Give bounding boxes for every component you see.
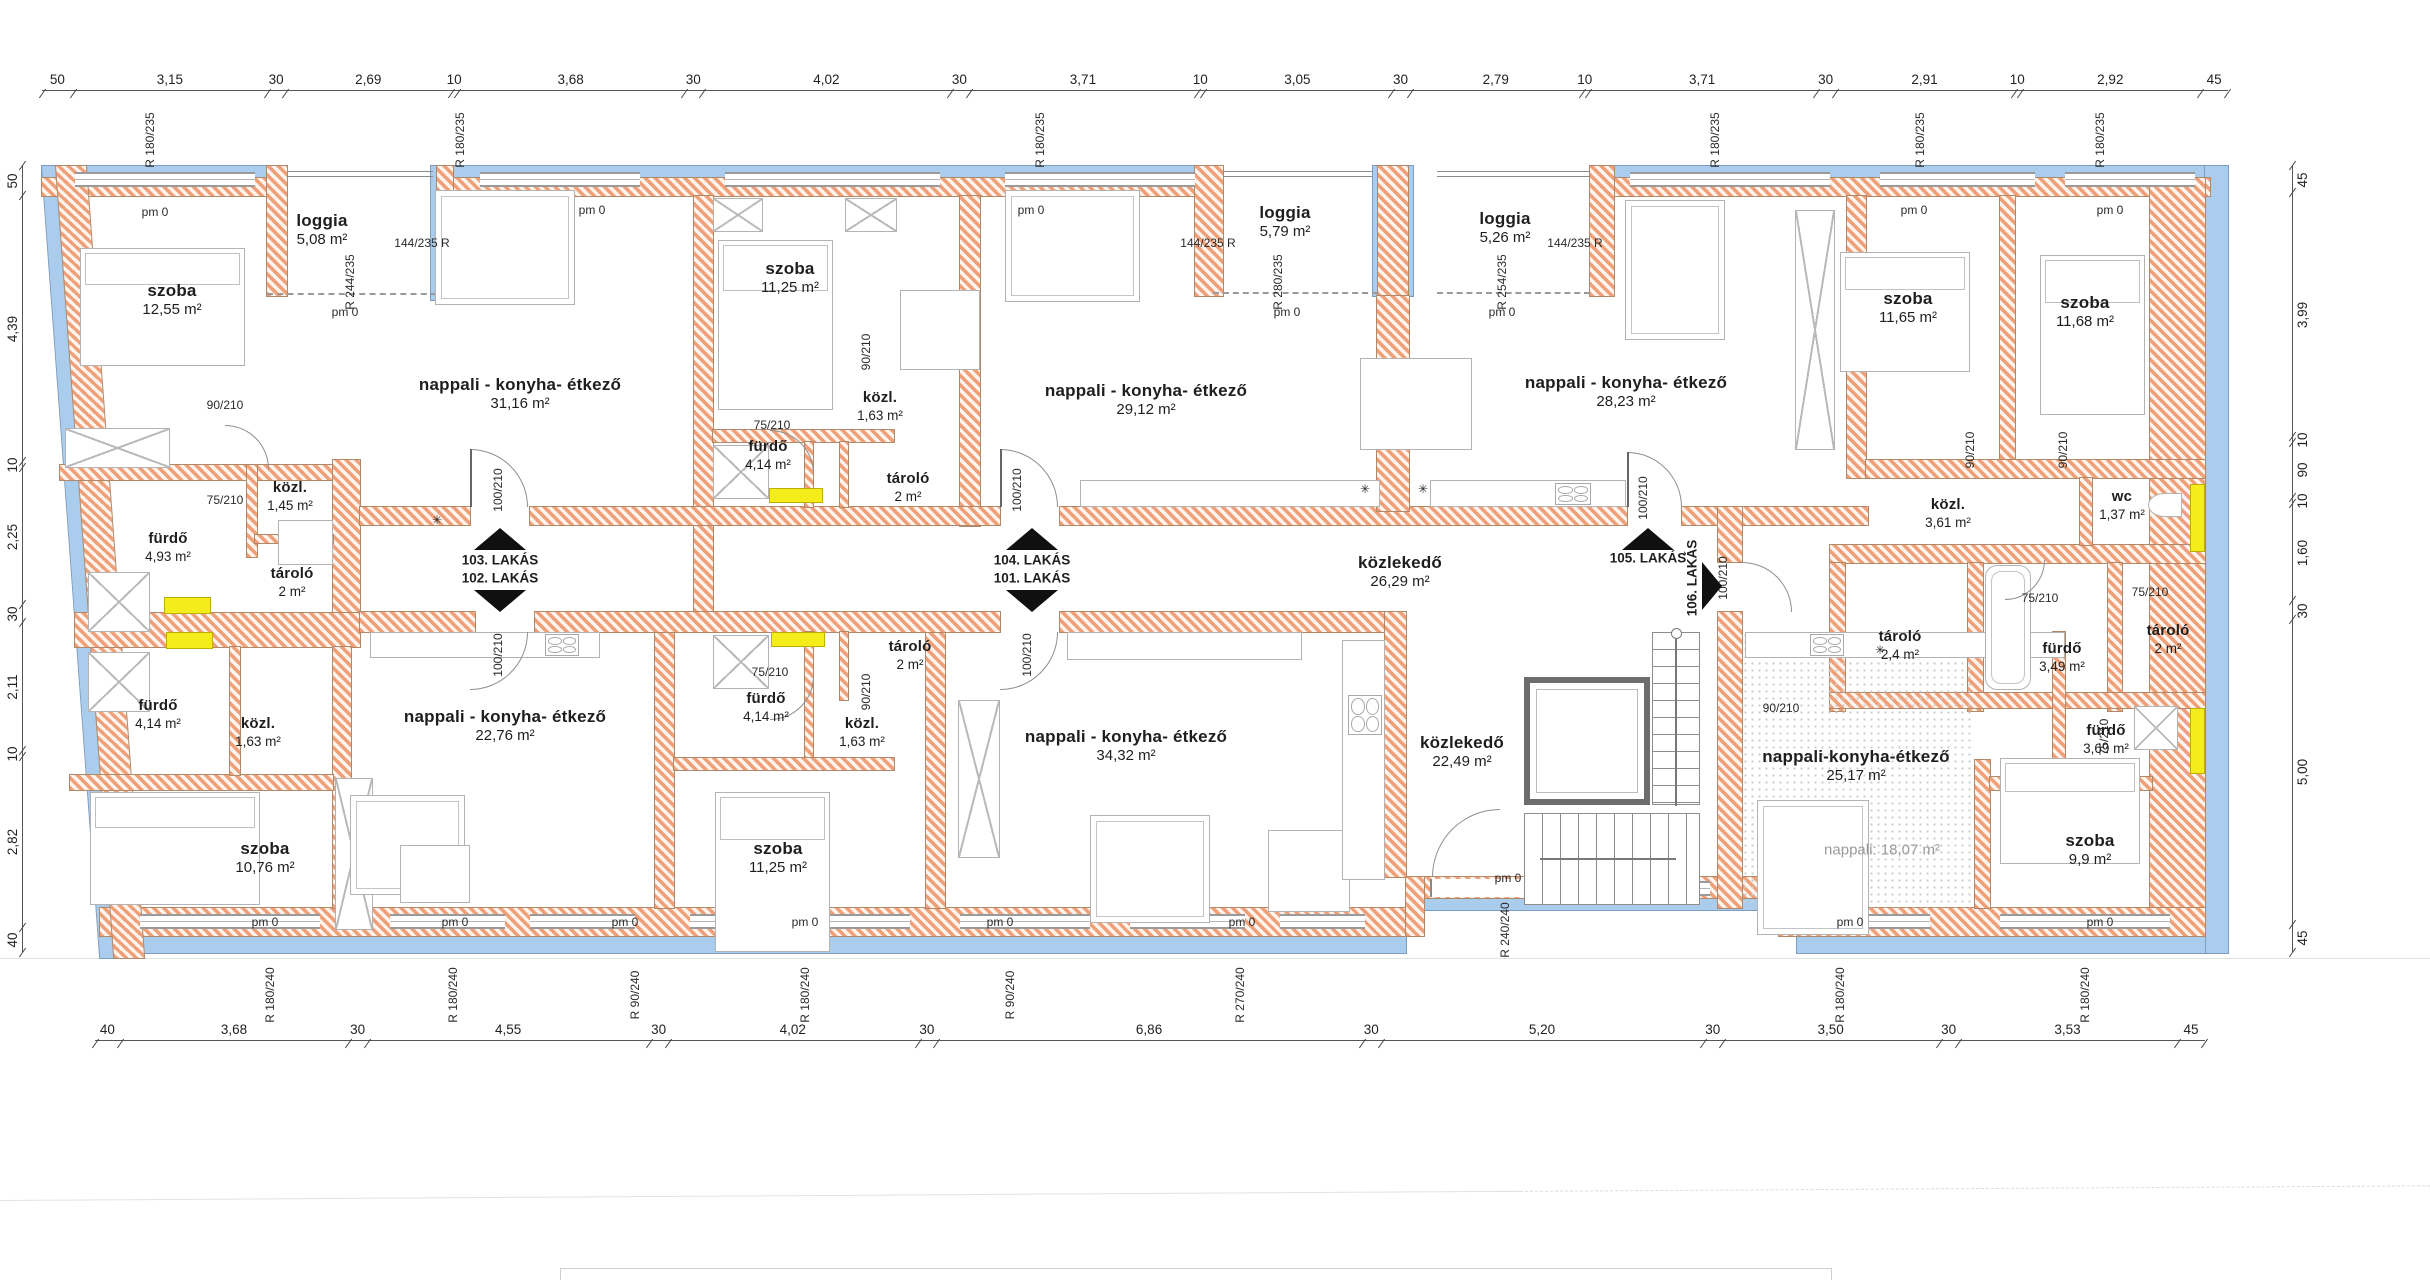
- room-area: 22,76 m²: [404, 727, 606, 746]
- wall-interior: [2080, 478, 2092, 545]
- wall-interior: [713, 430, 894, 442]
- annotation: R 180/235: [1913, 112, 1927, 167]
- annotation: pm 0: [579, 203, 606, 217]
- annotation: R 270/240: [1233, 967, 1247, 1022]
- room-area: 1,63 m²: [857, 408, 903, 425]
- wall-loggia-pier: [1590, 166, 1614, 296]
- wall-loggia-pier: [1195, 166, 1223, 296]
- room-label: fürdő 4,93 m²: [145, 530, 191, 566]
- dimension-segment: 30: [1703, 1030, 1722, 1041]
- dimension-segment: 45: [2200, 80, 2228, 91]
- dimension-segment: 3,15: [73, 80, 267, 91]
- shower: [2134, 706, 2178, 750]
- dimension-segment: 90: [2292, 443, 2303, 498]
- dimension-segment: 30: [684, 80, 702, 91]
- room-label: közl. 3,61 m²: [1925, 496, 1971, 532]
- annotation: 75/210: [2022, 591, 2059, 605]
- room-label: fürdő 4,14 m²: [135, 697, 181, 733]
- entry-arrow-right-icon: [1702, 562, 1722, 610]
- room-area: 26,29 m²: [1358, 573, 1442, 592]
- loggia-edge-dashed: [1213, 292, 1378, 294]
- room-name: fürdő: [135, 697, 181, 716]
- elevator-shaft: [1524, 677, 1650, 805]
- room-label: nappali-konyha-étkező 25,17 m²: [1762, 746, 1949, 786]
- wall-interior: [1975, 760, 1990, 908]
- room-area: 28,23 m²: [1525, 393, 1727, 412]
- insulation-strip: [1797, 936, 2205, 953]
- floor-plan-canvas: szoba 12,55 m² loggia 5,08 m² nappali - …: [0, 0, 2430, 1280]
- highlight-mark: [2191, 485, 2204, 551]
- annotation: R 280/235: [1271, 254, 1285, 309]
- annotation: pm 0: [332, 305, 359, 319]
- door-swing: [1000, 449, 1058, 507]
- dimension-row-top: 503,15302,69103,68304,02303,71103,05302,…: [42, 80, 2228, 91]
- room-area: 4,93 m²: [145, 549, 191, 566]
- annotation: 90/210: [2056, 432, 2070, 469]
- dimension-column-left: 504,39102,25302,11102,8240: [12, 166, 23, 952]
- annotation: 75/210: [207, 493, 244, 507]
- annotation: R 254/235: [1495, 254, 1509, 309]
- room-area: 2 m²: [271, 584, 314, 601]
- dimension-segment: 4,02: [668, 1030, 918, 1041]
- room-name: közl.: [235, 715, 281, 734]
- dimension-segment: 1,60: [2292, 504, 2303, 602]
- annotation: R 180/235: [143, 112, 157, 167]
- wall-notch-side: [1406, 877, 1424, 936]
- entry-label-105: 105. LAKÁS: [1610, 551, 1687, 566]
- loggia-railing: [1437, 171, 1590, 177]
- dimension-segment: 3,50: [1722, 1030, 1939, 1041]
- annotation: pm 0: [1229, 915, 1256, 929]
- room-area: 5,79 m²: [1259, 223, 1310, 242]
- room-label: fürdő 4,14 m²: [745, 438, 791, 474]
- dining-table: [1268, 830, 1350, 912]
- dimension-segment: 4,39: [12, 196, 23, 462]
- kitchen-counter: [1080, 480, 1380, 507]
- dining-table: [900, 290, 980, 370]
- annotation: 75/210: [754, 418, 791, 432]
- room-label: nappali - konyha- étkező 28,23 m²: [1525, 372, 1727, 412]
- annotation: pm 0: [1274, 305, 1301, 319]
- room-area: 29,12 m²: [1045, 401, 1247, 420]
- wall-interior: [1385, 612, 1406, 877]
- annotation: ✳: [432, 513, 442, 527]
- annotation: pm 0: [142, 205, 169, 219]
- wall-partition: [840, 632, 848, 700]
- cooktop: [545, 634, 579, 656]
- room-area: 5,26 m²: [1479, 229, 1530, 248]
- room-name: loggia: [296, 210, 347, 231]
- table: [400, 845, 470, 903]
- annotation: 75/210: [2097, 719, 2111, 756]
- dimension-segment: 30: [1939, 1030, 1958, 1041]
- annotation: 100/210: [491, 633, 505, 676]
- wall-corridor-bottom: [535, 612, 1000, 632]
- wardrobe: [65, 428, 170, 468]
- cooktop: [1555, 483, 1591, 505]
- annotation: 144/235 R: [1547, 236, 1602, 250]
- wall-corridor-bottom: [360, 612, 475, 632]
- dimension-segment: 30: [1362, 1030, 1381, 1041]
- annotation: pm 0: [792, 915, 819, 929]
- room-area: 31,16 m²: [419, 395, 621, 414]
- shower: [713, 635, 769, 689]
- dimension-segment: 30: [348, 1030, 367, 1041]
- room-name: közl.: [1925, 496, 1971, 515]
- room-name: szoba: [142, 280, 201, 301]
- annotation: pm 0: [1901, 203, 1928, 217]
- room-area: 12,55 m²: [142, 301, 201, 320]
- window: [960, 914, 1090, 929]
- annotation: R 180/235: [453, 112, 467, 167]
- wall-interior: [1866, 460, 2205, 478]
- window: [725, 172, 940, 187]
- room-label: nappali - konyha- étkező 31,16 m²: [419, 374, 621, 414]
- room-label: közl. 1,63 m²: [839, 715, 885, 751]
- insulation-strip: [1408, 166, 1413, 296]
- room-name: közlekedő: [1358, 552, 1442, 573]
- wall-corridor-top: [360, 507, 470, 525]
- annotation: R 180/240: [263, 967, 277, 1022]
- annotation: pm 0: [2097, 203, 2124, 217]
- wall-partition: [840, 442, 848, 507]
- insulation-strip: [2205, 166, 2228, 953]
- dimension-segment: 45: [2177, 1030, 2205, 1041]
- door-swing: [225, 425, 269, 469]
- dimension-segment: 3,68: [120, 1030, 348, 1041]
- room-area: 25,17 m²: [1762, 767, 1949, 786]
- room-area: 34,32 m²: [1025, 747, 1227, 766]
- room-area: 1,63 m²: [235, 734, 281, 751]
- cooktop: [1348, 695, 1382, 735]
- room-label: közlekedő 22,49 m²: [1420, 732, 1504, 772]
- door-leaf: [1000, 449, 1002, 507]
- wardrobe: [713, 198, 763, 232]
- wall-interior: [655, 632, 674, 908]
- room-label: fürdő 3,49 m²: [2039, 640, 2085, 676]
- kitchen-counter: [1067, 632, 1302, 660]
- room-label: fürdő 4,14 m²: [743, 690, 789, 726]
- room-name: wc: [2099, 488, 2145, 507]
- room-name: közl.: [857, 389, 903, 408]
- room-name: tároló: [889, 638, 932, 657]
- annotation: pm 0: [252, 915, 279, 929]
- annotation: R 180/240: [1833, 967, 1847, 1022]
- room-name: fürdő: [745, 438, 791, 457]
- room-name: szoba: [749, 838, 807, 859]
- entry-label-101: 101. LAKÁS: [994, 571, 1071, 586]
- toilet: [2148, 493, 2182, 517]
- wall-interior: [694, 196, 713, 612]
- shower: [88, 572, 150, 632]
- room-area: 1,45 m²: [267, 498, 313, 515]
- entry-arrow-up-icon: [1622, 528, 1674, 550]
- wall-loggia-pier: [267, 166, 287, 296]
- annotation: 90/210: [207, 398, 244, 412]
- wall-interior: [1718, 507, 1742, 562]
- entry-arrow-up-icon: [474, 528, 526, 550]
- room-label: nappali - konyha- étkező 34,32 m²: [1025, 726, 1227, 766]
- dimension-segment: 30: [12, 605, 23, 623]
- room-label: wc 1,37 m²: [2099, 488, 2145, 524]
- sofa: [1625, 200, 1725, 340]
- window: [2065, 172, 2195, 187]
- room-area: 22,49 m²: [1420, 753, 1504, 772]
- entry-label-103: 103. LAKÁS: [462, 553, 539, 568]
- loggia-railing: [1223, 171, 1373, 177]
- highlight-mark: [772, 633, 824, 646]
- room-area: 9,9 m²: [2065, 851, 2114, 870]
- annotation: R 180/235: [1708, 112, 1722, 167]
- annotation: 144/235 R: [1180, 236, 1235, 250]
- dimension-segment: 3,05: [1203, 80, 1391, 91]
- window: [75, 172, 255, 187]
- wall-corridor-top: [1060, 507, 1627, 525]
- room-label: közl. 1,63 m²: [235, 715, 281, 751]
- annotation: pm 0: [612, 915, 639, 929]
- window: [830, 914, 910, 929]
- annotation: 90/210: [1963, 432, 1977, 469]
- dimension-segment: 30: [267, 80, 285, 91]
- room-label: szoba 10,76 m²: [235, 838, 294, 878]
- room-area: 1,37 m²: [2099, 507, 2145, 524]
- cooktop: [1810, 634, 1844, 656]
- room-area: 2 m²: [2147, 641, 2190, 658]
- window: [1880, 172, 2035, 187]
- dimension-segment: 2,69: [285, 80, 451, 91]
- room-label: szoba 9,9 m²: [2065, 830, 2114, 870]
- dimension-segment: 4,02: [702, 80, 950, 91]
- room-label: közlekedő 26,29 m²: [1358, 552, 1442, 592]
- dining-table: [1360, 358, 1472, 450]
- room-name: nappali - konyha- étkező: [419, 374, 621, 395]
- room-area: 4,14 m²: [743, 709, 789, 726]
- site-line-dashed: [1500, 1185, 2430, 1192]
- window: [140, 914, 320, 929]
- dimension-segment: 3,68: [457, 80, 684, 91]
- room-name: közl.: [839, 715, 885, 734]
- annotation: R 180/240: [446, 967, 460, 1022]
- annotation: pm 0: [1018, 203, 1045, 217]
- room-name: nappali - konyha- étkező: [1025, 726, 1227, 747]
- wardrobe: [845, 198, 897, 232]
- room-area: 3,49 m²: [2039, 659, 2085, 676]
- dimension-column-right: 453,991090101,60305,0045: [2292, 166, 2303, 952]
- wall-interior: [1718, 612, 1742, 908]
- annotation: R 180/240: [798, 967, 812, 1022]
- dimension-segment: 2,82: [12, 757, 23, 928]
- annotation: R 90/240: [1003, 971, 1017, 1020]
- room-label: loggia 5,08 m²: [296, 210, 347, 250]
- entry-arrow-down-icon: [1006, 590, 1058, 612]
- room-name: nappali - konyha- étkező: [1045, 380, 1247, 401]
- wall-partition: [230, 647, 240, 775]
- room-name: szoba: [2056, 292, 2114, 313]
- wall-interior: [674, 758, 894, 770]
- door-swing: [1432, 809, 1500, 877]
- wall-partition: [247, 465, 257, 557]
- room-label: loggia 5,26 m²: [1479, 208, 1530, 248]
- room-name: közlekedő: [1420, 732, 1504, 753]
- door-leaf: [1627, 452, 1629, 507]
- room-name: nappali-konyha-étkező: [1762, 746, 1949, 767]
- room-name: nappali - konyha- étkező: [404, 706, 606, 727]
- entry-label-104: 104. LAKÁS: [994, 553, 1071, 568]
- annotation: 75/210: [752, 665, 789, 679]
- room-label: szoba 11,68 m²: [2056, 292, 2114, 332]
- annotation: R 90/240: [628, 971, 642, 1020]
- dimension-segment: 30: [950, 80, 968, 91]
- room-label: szoba 11,65 m²: [1879, 288, 1937, 328]
- room-label: szoba 11,25 m²: [749, 838, 807, 878]
- dimension-segment: 2,92: [2020, 80, 2200, 91]
- stair-walkline: [1540, 858, 1676, 860]
- wall-loggia-divider: [1378, 166, 1408, 296]
- site-line: [0, 1191, 1520, 1201]
- room-label: nappali: 18,07 m²: [1824, 842, 1940, 861]
- highlight-mark: [2191, 709, 2204, 773]
- dimension-segment: 30: [1816, 80, 1834, 91]
- dimension-segment: 45: [2292, 925, 2303, 952]
- annotation: 100/210: [1010, 468, 1024, 511]
- annotation: 100/210: [491, 468, 505, 511]
- annotation: pm 0: [442, 915, 469, 929]
- room-name: tároló: [2147, 622, 2190, 641]
- wardrobe: [958, 700, 1000, 858]
- annotation: pm 0: [1489, 305, 1516, 319]
- annotation: 100/210: [1636, 476, 1650, 519]
- room-area: 5,08 m²: [296, 231, 347, 250]
- room-area: nappali: 18,07 m²: [1824, 842, 1940, 861]
- highlight-mark: [165, 598, 210, 613]
- stair-walkline-start: [1671, 628, 1682, 639]
- dimension-segment: 5,20: [1381, 1030, 1704, 1041]
- wall-corridor-top: [530, 507, 1000, 525]
- room-area: 3,61 m²: [1925, 515, 1971, 532]
- bed: [2040, 255, 2145, 415]
- dimension-row-bottom: 403,68304,55304,02306,86305,20303,50303,…: [95, 1030, 2205, 1041]
- dimension-segment: 6,86: [936, 1030, 1362, 1041]
- dimension-segment: 3,99: [2292, 193, 2303, 436]
- dimension-segment: 30: [649, 1030, 668, 1041]
- wall-corridor-bottom: [1060, 612, 1406, 632]
- wardrobe: [1795, 210, 1835, 450]
- room-name: szoba: [1879, 288, 1937, 309]
- dimension-segment: 50: [42, 80, 73, 91]
- dimension-segment: 40: [12, 928, 23, 952]
- room-name: nappali - konyha- étkező: [1525, 372, 1727, 393]
- kitchen-counter: [1430, 480, 1626, 507]
- annotation: 75/210: [2132, 585, 2169, 599]
- wall-interior: [70, 775, 333, 790]
- annotation: 90/210: [1763, 701, 1800, 715]
- room-name: szoba: [235, 838, 294, 859]
- annotation: 90/210: [859, 674, 873, 711]
- room-label: tároló 2 m²: [2147, 622, 2190, 658]
- annotation: 90/210: [859, 334, 873, 371]
- room-name: loggia: [1479, 208, 1530, 229]
- room-area: 2 m²: [887, 489, 930, 506]
- room-name: közl.: [267, 479, 313, 498]
- room-label: közl. 1,45 m²: [267, 479, 313, 515]
- room-name: szoba: [2065, 830, 2114, 851]
- dimension-segment: 2,25: [12, 468, 23, 604]
- room-label: közl. 1,63 m²: [857, 389, 903, 425]
- room-area: 4,14 m²: [135, 716, 181, 733]
- annotation: 144/235 R: [394, 236, 449, 250]
- annotation: pm 0: [2087, 915, 2114, 929]
- annotation: pm 0: [1837, 915, 1864, 929]
- annotation: ✳: [1418, 482, 1428, 496]
- dimension-segment: 40: [95, 1030, 120, 1041]
- loggia-railing: [287, 171, 433, 177]
- loggia-edge-dashed: [1437, 292, 1590, 294]
- dimension-segment: 2,91: [1835, 80, 2014, 91]
- entry-label-106: 106. LAKÁS: [1685, 540, 1700, 617]
- annotation: ✳: [1360, 482, 1370, 496]
- annotation: ✳: [1875, 643, 1885, 657]
- dimension-segment: 3,71: [1588, 80, 1817, 91]
- room-label: szoba 12,55 m²: [142, 280, 201, 320]
- highlight-mark: [167, 633, 212, 648]
- room-name: loggia: [1259, 202, 1310, 223]
- dimension-segment: 2,79: [1410, 80, 1582, 91]
- dimension-segment: 2,11: [12, 623, 23, 751]
- ground-line: [0, 958, 2430, 959]
- window: [1280, 914, 1365, 929]
- wall-corridor-top: [1682, 507, 1868, 525]
- window: [1005, 172, 1195, 187]
- wall-interior: [2000, 196, 2015, 478]
- room-name: tároló: [887, 470, 930, 489]
- room-label: nappali - konyha- étkező 29,12 m²: [1045, 380, 1247, 420]
- annotation: R 244/235: [343, 254, 357, 309]
- room-area: 10,76 m²: [235, 859, 294, 878]
- room-area: 11,25 m²: [749, 859, 807, 878]
- room-name: szoba: [761, 258, 819, 279]
- door-swing: [1742, 562, 1792, 612]
- annotation: 100/210: [1020, 633, 1034, 676]
- dimension-segment: 3,71: [969, 80, 1198, 91]
- dimension-segment: 30: [918, 1030, 937, 1041]
- entry-arrow-down-icon: [474, 590, 526, 612]
- dimension-segment: 30: [1391, 80, 1409, 91]
- room-name: tároló: [271, 565, 314, 584]
- room-name: fürdő: [2039, 640, 2085, 659]
- room-name: fürdő: [743, 690, 789, 709]
- room-area: 11,65 m²: [1879, 309, 1937, 328]
- sofa: [1090, 815, 1210, 923]
- kitchen-counter: [1342, 640, 1385, 880]
- dimension-segment: 50: [12, 166, 23, 196]
- room-area: 1,63 m²: [839, 734, 885, 751]
- room-label: tároló 2 m²: [887, 470, 930, 506]
- room-label: loggia 5,79 m²: [1259, 202, 1310, 242]
- titleblock-edge: [560, 1268, 1832, 1280]
- door-leaf: [470, 449, 472, 507]
- room-area: 2 m²: [889, 657, 932, 674]
- sofa: [435, 190, 575, 305]
- highlight-mark: [770, 489, 822, 502]
- annotation: R 240/240: [1498, 902, 1512, 957]
- window: [1630, 172, 1830, 187]
- room-label: nappali - konyha- étkező 22,76 m²: [404, 706, 606, 746]
- wall-interior: [2108, 563, 2122, 711]
- annotation: R 180/235: [1033, 112, 1047, 167]
- annotation: R 180/235: [2093, 112, 2107, 167]
- entry-label-102: 102. LAKÁS: [462, 571, 539, 586]
- room-label: tároló 2 m²: [271, 565, 314, 601]
